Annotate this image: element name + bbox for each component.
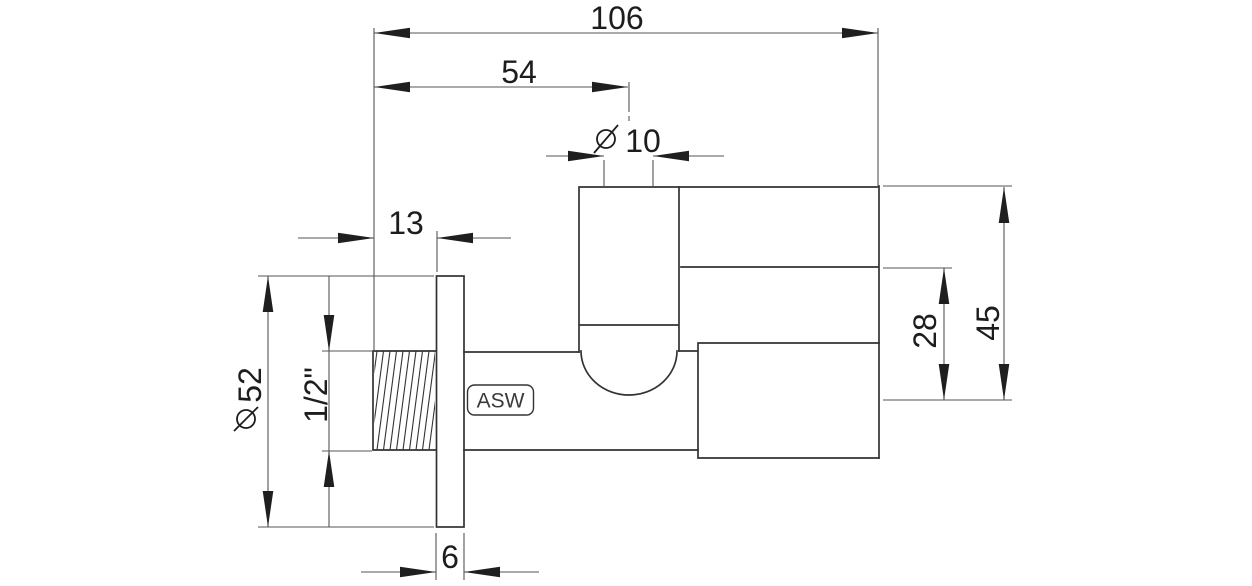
outlet-bore-label: 10: [594, 123, 661, 159]
drawing-canvas: 106 54 10 13 52 1/2" 28 45 6 ASW: [0, 0, 1252, 581]
arrowhead-bottom: [263, 491, 274, 527]
valve-body: [679, 186, 879, 458]
headwork-cylinder: [579, 187, 679, 352]
diameter-icon: [594, 125, 618, 153]
arrowhead-left: [374, 82, 410, 93]
arrowhead-top: [939, 268, 950, 304]
brand-label: ASW: [468, 385, 534, 415]
arrowhead-right: [437, 233, 473, 244]
arrowhead-left: [338, 233, 374, 244]
extension-lines: [604, 160, 653, 186]
thread-size-label: 1/2": [298, 367, 334, 423]
outlet-box: [679, 343, 879, 458]
arrowhead-top: [324, 315, 335, 351]
diameter-icon: [234, 407, 258, 431]
arrowhead-right: [464, 567, 500, 578]
rosette-diameter-label: 52: [232, 367, 268, 431]
depth-to-axis-label: 28: [907, 313, 943, 349]
angle-valve-technical-drawing: 106 54 10 13 52 1/2" 28 45 6 ASW: [0, 0, 1252, 581]
overall-length-label: 106: [590, 0, 643, 36]
inlet-to-axis-label: 54: [501, 54, 537, 90]
dim-rosette-diameter: [258, 276, 434, 527]
rosette-diameter-value: 52: [232, 367, 268, 403]
arrowhead-right: [842, 28, 878, 39]
arrowhead-bottom: [324, 451, 335, 487]
outlet-bore-value: 10: [625, 123, 661, 159]
arrowhead-bottom: [999, 364, 1010, 400]
wall-plate: [437, 276, 465, 527]
rosette-thickness-label: 6: [441, 539, 459, 575]
height-to-axis-label: 45: [970, 305, 1006, 341]
shared-extension-lines: [374, 28, 878, 351]
arrowhead-left: [568, 151, 604, 162]
brand-label-text: ASW: [477, 390, 525, 413]
arrowhead-left: [374, 28, 410, 39]
arrowhead-top: [999, 187, 1010, 223]
extension-lines: [258, 276, 434, 527]
arrowhead-top: [263, 276, 274, 312]
arrowhead-left: [400, 567, 436, 578]
valve-outline: [364, 186, 879, 527]
dimensions: [258, 28, 1012, 580]
thread-length-label: 13: [388, 205, 424, 241]
bonnet-dome: [581, 351, 677, 395]
arrowhead-right: [592, 82, 628, 93]
arrowhead-bottom: [939, 364, 950, 400]
